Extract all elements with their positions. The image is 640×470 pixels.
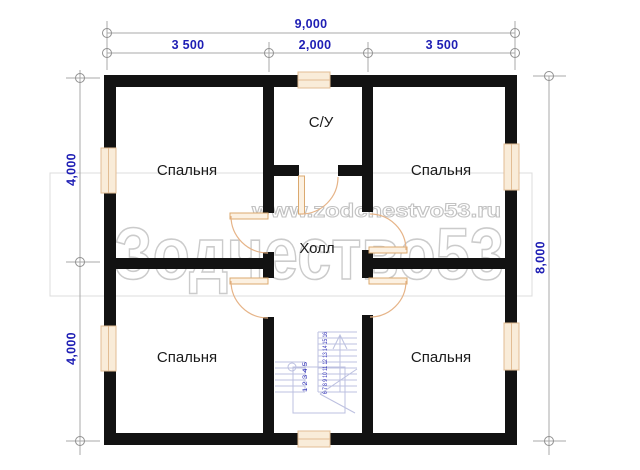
floor-plan-canvas: www.zodchestvo53.ru Зодчество53 6 7 8 9 … [0,0,640,470]
room-label-bedroom-bottom-right: Спальня [371,350,511,366]
room-label-hall: Холл [267,241,367,257]
wall-bathroom-bottom-left [263,165,299,176]
wall-hall-left-lower [263,317,274,433]
room-label-bedroom-top-right: Спальня [371,163,511,179]
dim-label-right-total: 8,000 [535,208,548,308]
dim-label-left-lower: 4,000 [66,299,79,399]
door-bedroom-tr-leaf [369,247,407,253]
dim-label-top-seg-2: 2,000 [265,39,365,52]
wall-hall-right-lower [362,315,373,433]
stairs-group [275,332,357,413]
wall-mid-left [104,258,263,269]
dim-label-left-upper: 4,000 [66,120,79,220]
stair-numbers-right: 6 7 8 9 10 11 12 13 14 15 16 [322,332,329,394]
door-bathroom-leaf [299,176,305,214]
door-bedroom-tl-leaf [230,213,268,219]
wall-bathroom-bottom-right [338,165,373,176]
wall-hall-left-upper [263,87,274,213]
dim-label-top-seg-1: 3 500 [138,39,238,52]
door-bedroom-bl-leaf [230,278,268,284]
door-bedroom-br-leaf [369,278,407,284]
dim-label-top-seg-3: 3 500 [392,39,492,52]
room-label-bathroom: С/У [281,115,361,131]
room-label-bedroom-bottom-left: Спальня [117,350,257,366]
wall-mid-right [362,258,517,269]
wall-hall-right-upper [362,87,373,212]
stair-numbers-left: 1 2 3 4 5 [302,362,309,392]
dim-label-top-total: 9,000 [261,18,361,31]
room-label-bedroom-top-left: Спальня [117,163,257,179]
